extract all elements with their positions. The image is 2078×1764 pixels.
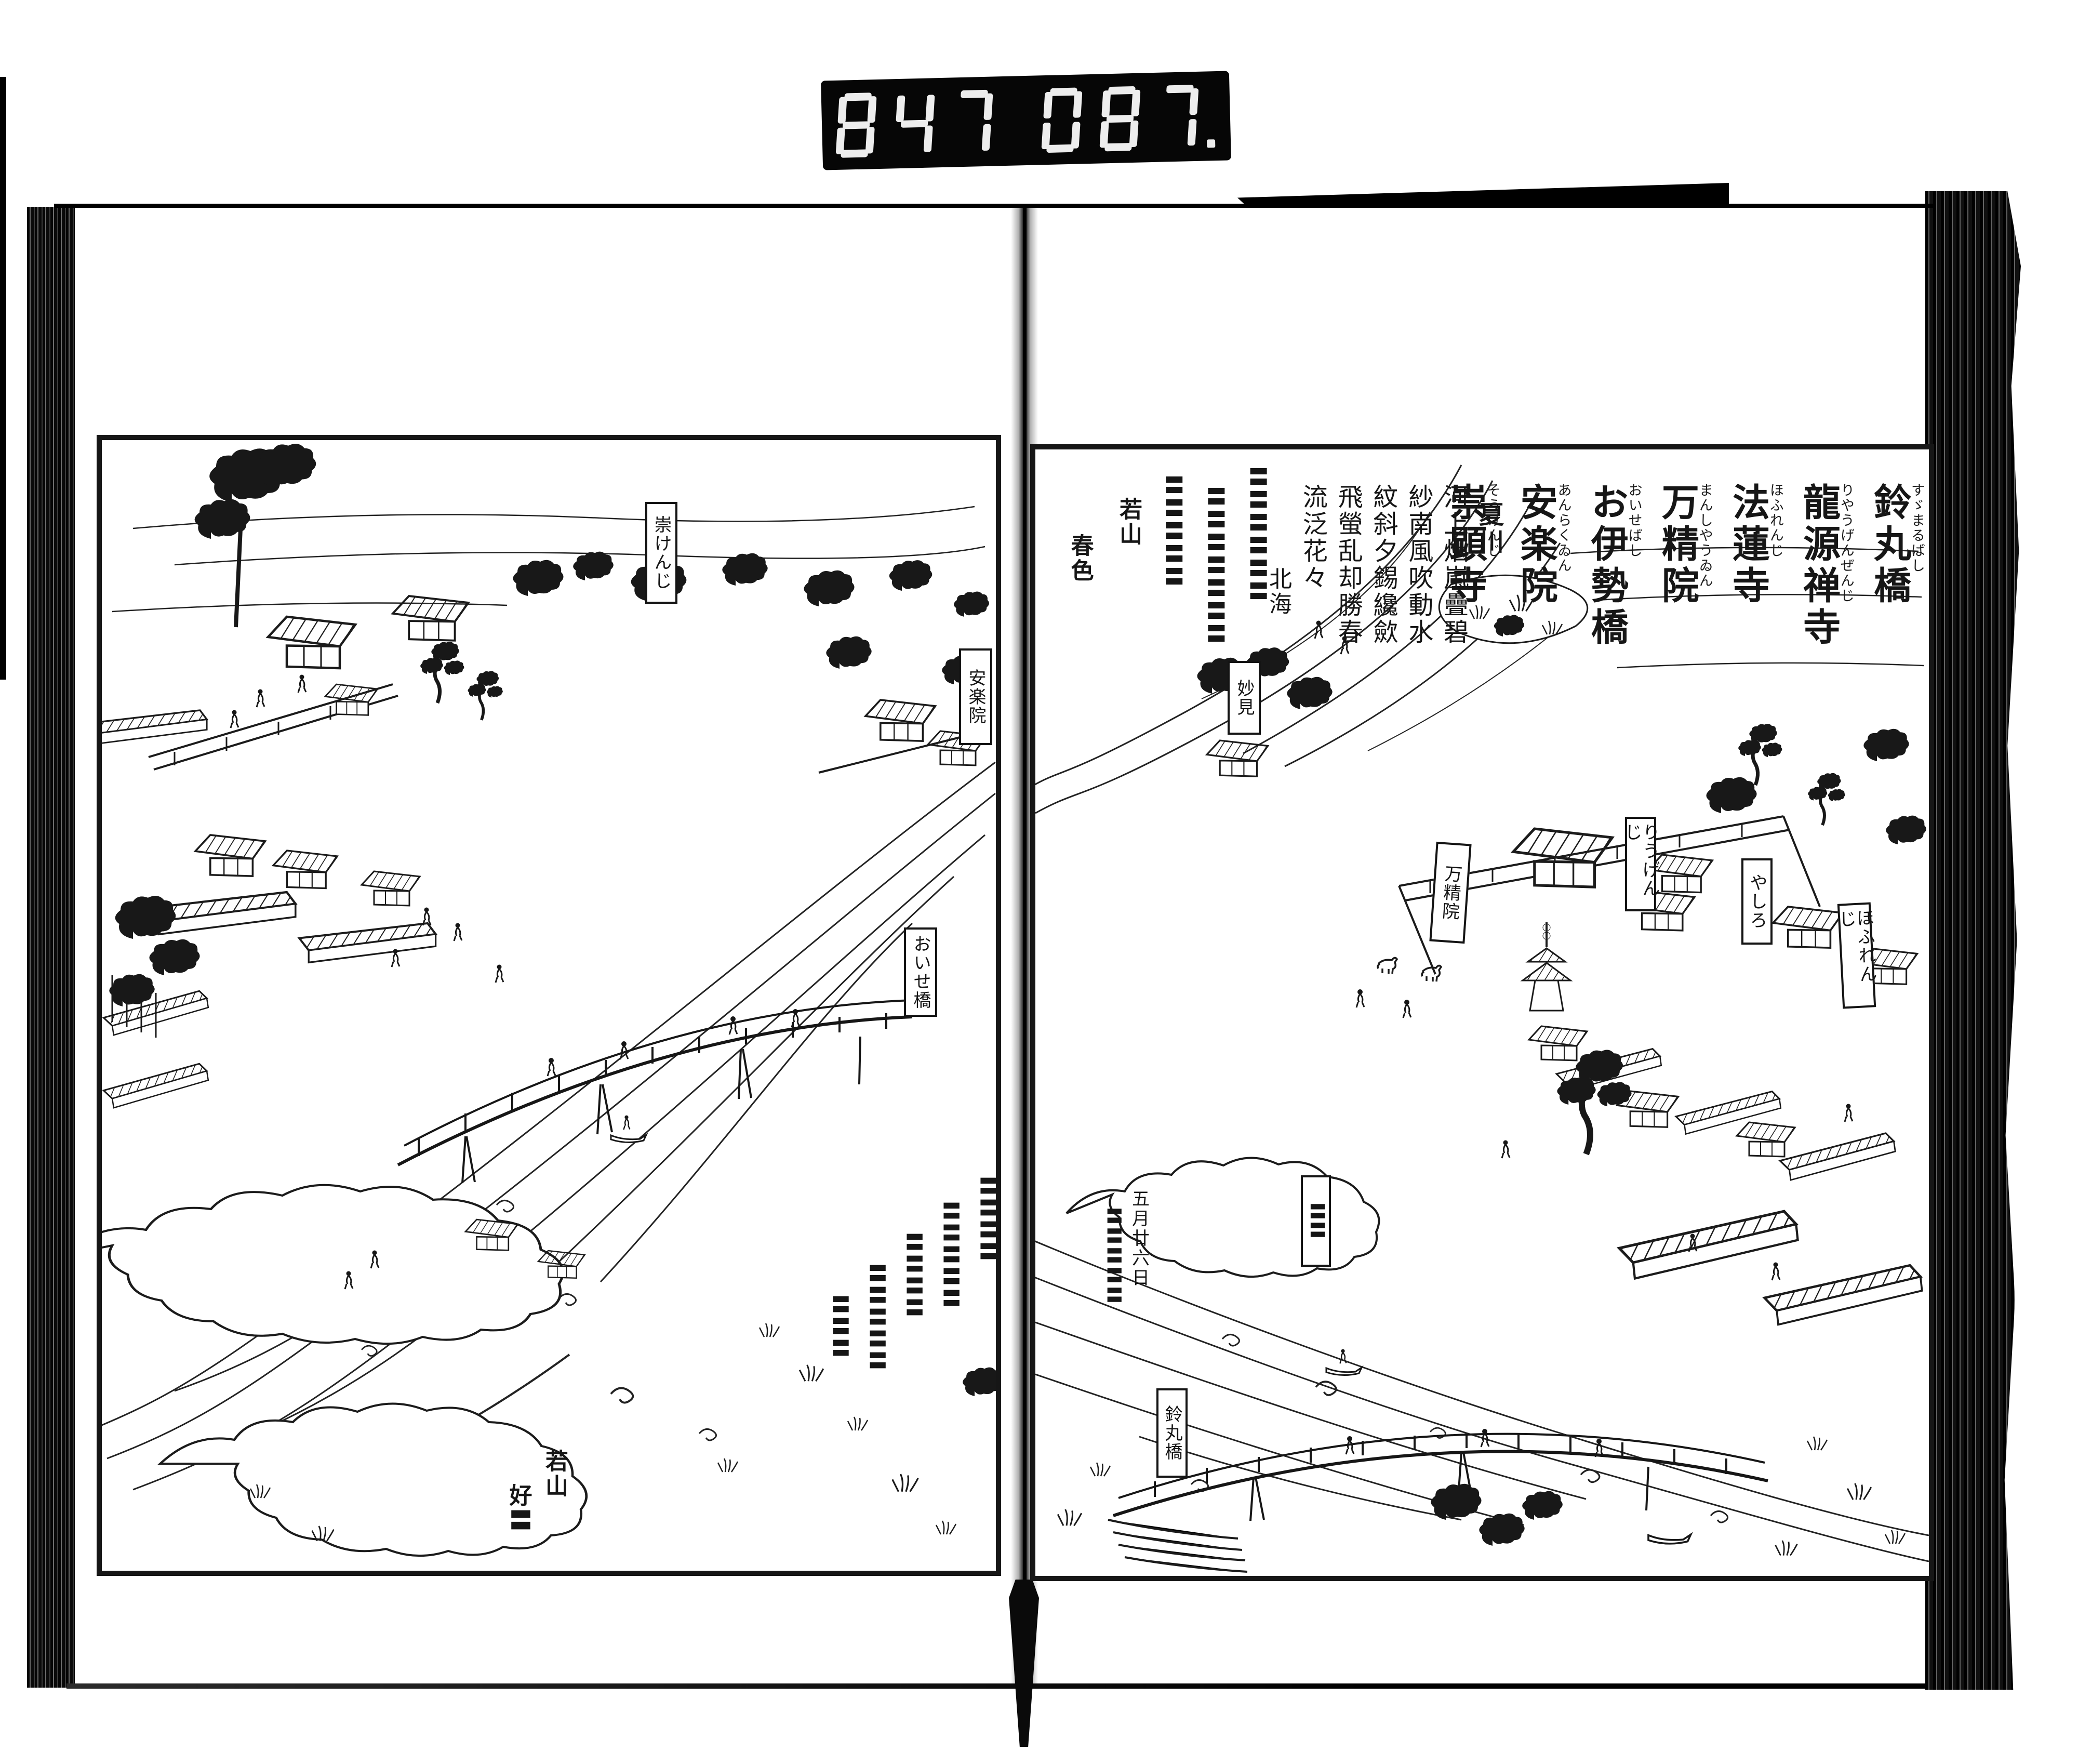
counter-digit-7 [952,90,993,155]
counter-digit-0 [1041,87,1083,153]
book-top-shadow [1237,183,1729,207]
poem-title: 夏川 [1475,501,1502,666]
note-text: 〓〓〓〓〓 [1103,1207,1122,1345]
scanned-book-page: 崇けんじ 安楽院 おいせ橋 〓〓〓〓 〓〓〓〓〓 〓〓〓〓 〓〓〓〓〓 〓〓〓 … [0,0,2078,1764]
poet-signature: 春色 [1068,534,1093,669]
book-left-page-edges [27,207,75,1688]
scan-edge-artifact [0,77,6,680]
counter-digit-8 [1099,86,1141,152]
pagoda-tower [1523,922,1570,1011]
river-date-note: 五月廿六日 〓〓〓〓〓 [1096,1189,1148,1345]
poet-signature: 若山 [1116,497,1141,669]
horses [1378,958,1441,982]
name-entry: りやうげんぜんじ 龍源禅寺 [1798,483,1853,732]
name-entry: すゞまるばし 鈴丸橋 [1869,483,1924,732]
waka-column: 〓〓〓〓〓 [1161,474,1183,669]
cartouche-suzumaru-bashi: 鈴丸橋 [1156,1388,1188,1478]
poet-signature: 北海 [1266,567,1291,666]
furigana: おいせばし [1626,483,1641,732]
place-name: お伊勢橋 [1586,483,1627,732]
cartouche-yashiro: やしろ [1741,858,1773,945]
place-name: 万精院 [1657,483,1697,732]
counter-decimal-point [1207,139,1215,148]
poem-line: 飛螢乱却勝春 [1334,484,1361,666]
place-name: 法蓮寺 [1727,483,1768,732]
book-right-page-edges [1925,191,2021,1690]
temple-compound [102,444,503,770]
main-bridge [398,1000,912,1183]
cartouche-ryugenji: りうげんじ [1625,817,1656,911]
date-text: 五月廿六日 [1129,1189,1149,1345]
river-boat [611,1116,646,1143]
furigana: まんしやうゐん [1697,483,1711,732]
cartouche-unread: 〓〓 [1301,1175,1331,1267]
poem-line: 河上烟嵐疊碧 [1440,484,1467,666]
cartouche-sokenji: 崇けんじ [645,502,677,604]
poem-line: 流泛花々 [1299,484,1326,666]
verse-column: 〓〓〓 [828,1294,849,1431]
counter-digit-4 [894,91,935,156]
poem-line: 紋斜夕錫纔歛 [1369,484,1396,666]
boats-and-logs [1108,1349,1691,1572]
treeline [513,552,989,617]
town-houses-lower [1502,1026,1924,1326]
waka-block: 〓〓〓〓〓〓 〓〓〓〓〓〓〓 〓〓〓〓〓 若山 春色 [1048,461,1268,669]
waka-column: 〓〓〓〓〓〓〓 [1203,486,1225,669]
cartouche-horenji: ほふれんじ [1837,902,1876,1009]
verse-column: 〓〓〓〓 [902,1232,923,1431]
frame-counter [821,71,1231,170]
signature-name: 若山 [542,1449,567,1574]
name-entry: あんらくゐん 安楽院 [1515,483,1570,732]
signature-name: 好〓 [506,1483,531,1574]
name-entry: ほふれんじ 法蓮寺 [1727,483,1782,732]
name-entry: まんしやうゐん 万精院 [1657,483,1712,732]
furigana: りやうげんぜんじ [1839,483,1853,732]
left-page-cursive-verse: 〓〓〓〓 〓〓〓〓〓 〓〓〓〓 〓〓〓〓〓 〓〓〓 [812,1172,997,1431]
verse-column: 〓〓〓〓 [976,1176,997,1431]
place-name: 安楽院 [1515,483,1555,732]
cartouche-myoken: 妙見 [1228,661,1261,735]
right-page-illustration-panel: すゞまるばし 鈴丸橋 りやうげんぜんじ 龍源禅寺 ほふれんじ 法蓮寺 まんしやう… [1030,444,1934,1581]
left-page-verse-signature: 若山 好〓 [495,1449,567,1574]
furigana: ほふれんじ [1767,483,1782,732]
counter-digit-8 [835,92,877,158]
place-name: 鈴丸橋 [1869,483,1909,732]
book-gutter-fold [1023,208,1027,1686]
frame-counter-right-digits [1042,83,1215,153]
frame-counter-left-digits [837,89,992,158]
east-grove [1648,724,1926,984]
kanshi-natsukawa: 夏川 河上烟嵐疊碧 紗南風吹動水 紋斜夕錫纔歛 飛螢乱却勝春 流泛花々 北海 [1255,484,1502,666]
verse-column: 〓〓〓〓〓 [939,1201,960,1431]
cartouche-anrakuin: 安楽院 [959,648,992,745]
book-bottom-edge [66,1683,1928,1689]
waka-column: 〓〓〓〓〓〓 [1245,466,1267,669]
place-name: 龍源禅寺 [1798,483,1839,732]
counter-digit-7 [1157,85,1199,150]
timber-raft [1108,1520,1247,1572]
cartouche-oise-bashi: おいせ橋 [904,927,937,1017]
name-entry: おいせばし お伊勢橋 [1586,483,1641,732]
poem-line: 紗南風吹動水 [1405,484,1432,666]
verse-column: 〓〓〓〓〓 [865,1263,886,1431]
left-page-illustration-panel: 崇けんじ 安楽院 おいせ橋 〓〓〓〓 〓〓〓〓〓 〓〓〓〓 〓〓〓〓〓 〓〓〓 … [97,435,1001,1576]
cartouche-manshoin: 万精院 [1429,842,1471,944]
furigana: あんらくゐん [1555,483,1570,732]
